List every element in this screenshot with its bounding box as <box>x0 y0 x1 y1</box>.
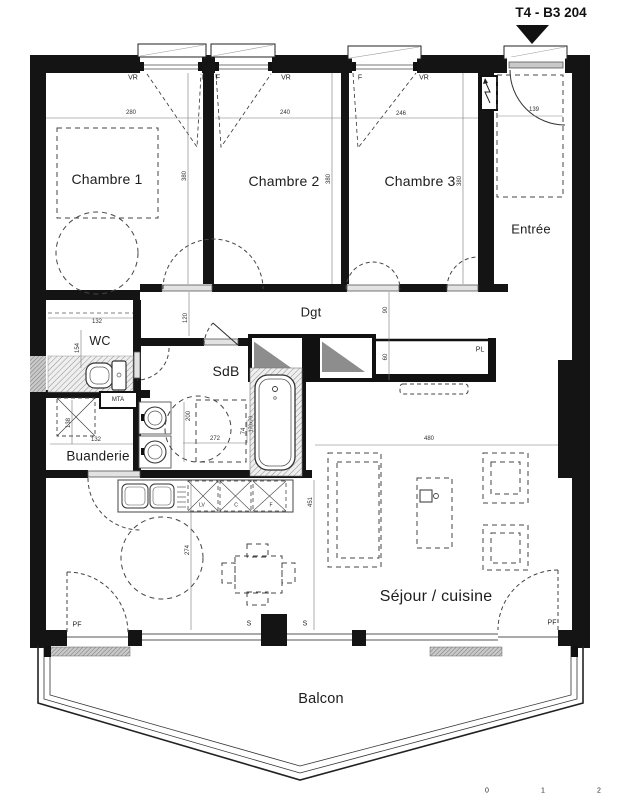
floor-plan-drawing <box>0 0 636 800</box>
tv-unit <box>417 478 452 548</box>
room-label-sejour: Séjour / cuisine <box>380 589 493 605</box>
plan-title: T4 - B3 204 <box>490 5 612 20</box>
window1-f-label: F <box>202 75 206 82</box>
electrical-panel <box>481 76 497 110</box>
dim-chambre3-depth: 380 <box>457 176 463 186</box>
room-label-chambre2: Chambre 2 <box>248 174 319 188</box>
dim-entry-door: 139 <box>529 107 539 113</box>
scale-tick-2: 2 <box>597 788 601 795</box>
window1-vr-label: VR <box>128 75 138 82</box>
room-label-chambre3: Chambre 3 <box>384 174 455 188</box>
dim-sejour-depth: 451 <box>308 497 314 507</box>
appliance-c-label: C <box>234 504 238 509</box>
closet-label-mta: MTA <box>112 397 124 403</box>
dim-dgt-left: 120 <box>183 313 189 323</box>
room-label-dgt: Dgt <box>301 306 322 319</box>
window2-f-label: F <box>216 75 220 82</box>
dim-bathtub: 170x70 <box>250 416 255 432</box>
sofa <box>328 453 381 567</box>
dim-buanderie-depth: 138 <box>66 418 72 428</box>
dim-sejour-width: 480 <box>424 436 434 442</box>
dim-pl-depth: 60 <box>383 354 389 361</box>
turning-circle-sdb <box>165 396 231 462</box>
dim-buanderie-width: 132 <box>91 437 101 443</box>
room-label-sdb: SdB <box>212 364 239 378</box>
room-label-entree: Entrée <box>511 223 551 236</box>
pillar <box>261 614 287 646</box>
pf-left-label: PF <box>73 622 82 629</box>
bathtub <box>250 368 302 476</box>
floor-plan-page: T4 - B3 204 Chambre 1 Chambre 2 Chambre … <box>0 0 636 800</box>
bathroom-fixtures <box>165 368 302 476</box>
dim-chambre2-width: 240 <box>280 110 290 116</box>
window3-f-label: F <box>358 75 362 82</box>
north-triangle <box>516 25 549 44</box>
entree-closet <box>497 75 563 197</box>
dim-chambre1-depth: 380 <box>182 171 188 181</box>
toilet <box>86 361 126 390</box>
room-label-wc: WC <box>89 335 110 348</box>
bench <box>400 384 468 394</box>
window2-vr-label: VR <box>281 75 291 82</box>
balcony <box>38 646 583 780</box>
turning-circle-chambre1 <box>56 212 138 294</box>
dim-chambre1-width: 280 <box>126 110 136 116</box>
room-label-chambre1: Chambre 1 <box>71 172 142 186</box>
dim-wc-width: 132 <box>92 319 102 325</box>
s-right-label: S <box>303 621 308 628</box>
dim-chambre2-depth: 380 <box>326 174 332 184</box>
window3-vr-label: VR <box>419 75 429 82</box>
armchair-1 <box>483 453 528 503</box>
dim-cuisine-width: 274 <box>185 545 191 555</box>
scale-tick-0: 0 <box>485 788 489 795</box>
dim-dgt-right: 90 <box>383 307 389 314</box>
dim-chambre3-width: 246 <box>396 111 406 117</box>
armchair-2 <box>483 525 528 570</box>
pf-right-label: PF <box>548 620 557 627</box>
room-label-buanderie: Buanderie <box>66 449 129 463</box>
dining-table <box>222 544 295 605</box>
dim-sdb-width: 272 <box>210 436 220 442</box>
dim-sdb-offset: 74 <box>241 428 247 435</box>
dim-wc-depth: 154 <box>75 343 81 353</box>
s-left-label: S <box>247 621 252 628</box>
appliance-f-label: F <box>269 504 272 509</box>
scale-tick-1: 1 <box>541 788 545 795</box>
dim-sdb-depth: 200 <box>186 411 192 421</box>
closet-label-pl: PL <box>476 347 485 354</box>
kitchen-fixtures <box>118 480 293 512</box>
room-label-balcon: Balcon <box>298 692 344 707</box>
appliance-lv-label: LV <box>199 504 205 509</box>
